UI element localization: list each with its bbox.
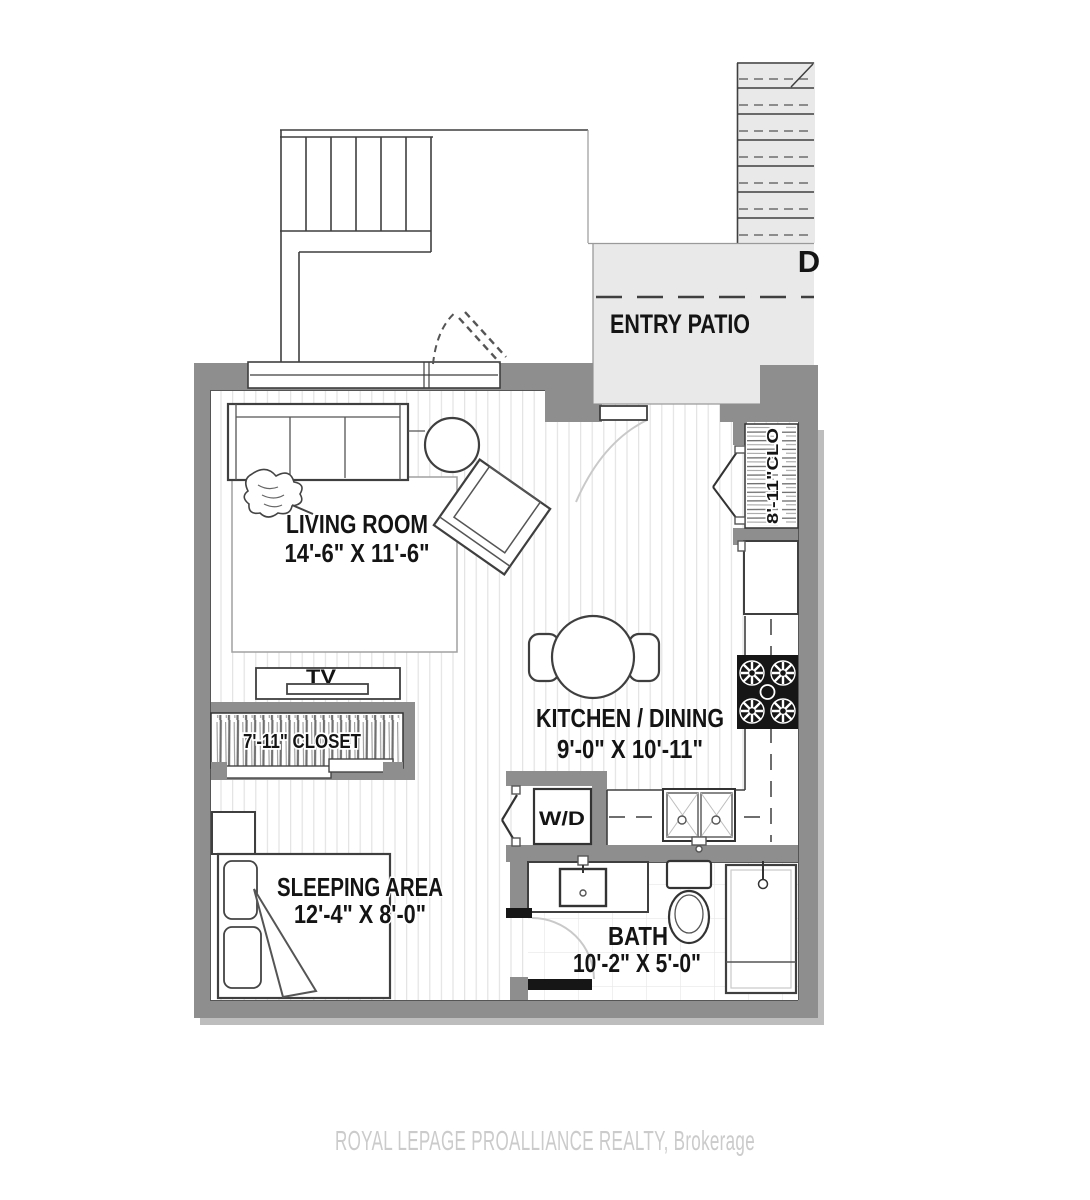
shower [726, 861, 796, 993]
washer-dryer-label: W/D [539, 809, 585, 830]
sleeping-area-label: SLEEPING AREA [277, 872, 443, 902]
entry-closet-label: 8'-11"CLO [765, 428, 782, 524]
tv-screen [287, 684, 368, 694]
entry-patio-label: ENTRY PATIO [610, 309, 750, 339]
kitchen-dining-label: KITCHEN / DINING [536, 703, 724, 733]
sink-faucet [692, 837, 706, 845]
bedroom-closet-label: 7'-11" CLOSET [243, 731, 361, 753]
toilet [667, 861, 711, 943]
bath-label: BATH [608, 921, 668, 951]
nightstand [212, 812, 255, 854]
bedroom-closet: 7'-11" CLOSET [211, 713, 403, 780]
closet-bypass-door-left [225, 766, 331, 778]
stair-direction-label: D [798, 244, 820, 279]
living-room-window [248, 362, 500, 388]
vanity-sink [560, 869, 606, 906]
living-room-dimensions: 14'-6" X 11'-6" [285, 538, 430, 568]
floor-plan-drawing: ENTRY PATIO D [0, 0, 1090, 1200]
exterior-door-swing-dashed [433, 311, 506, 364]
living-room-label: LIVING ROOM [286, 509, 428, 539]
side-table [425, 418, 479, 472]
entry-door-leaf [600, 406, 647, 420]
exterior-stairs-left [280, 130, 588, 364]
vanity [528, 856, 648, 912]
tv-console: TV [256, 667, 400, 699]
brokerage-watermark: ROYAL LEPAGE PROALLIANCE REALTY, Brokera… [335, 1125, 755, 1156]
kitchen-dining-dimensions: 9'-0" X 10'-11" [557, 734, 703, 764]
stair-slab [737, 62, 815, 243]
bath-door-leaf [528, 979, 592, 990]
stove [737, 655, 798, 729]
pillow [224, 927, 261, 988]
bath-dimensions: 10'-2" X 5'-0" [573, 948, 701, 978]
sofa [228, 404, 408, 480]
sleeping-area-dimensions: 12'-4" X 8'-0" [294, 899, 426, 929]
floor-plan-page: ENTRY PATIO D [0, 0, 1090, 1200]
dining-table [552, 616, 634, 698]
vanity-faucet [578, 856, 588, 865]
entry-patio: ENTRY PATIO D [588, 62, 820, 404]
pillow [224, 861, 257, 919]
fridge [744, 541, 798, 614]
